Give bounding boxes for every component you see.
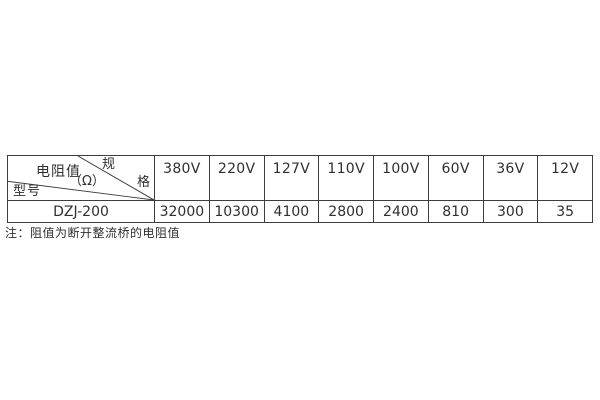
note-text: 注：阻值为断开整流桥的电阻值 [5, 224, 180, 241]
value-cell-60v: 810 [428, 201, 483, 222]
header-row: 规 格 电阻值 （Ω） 型号 380V 220V 127V 110V 100V … [8, 156, 592, 201]
column-header-60v: 60V [428, 156, 483, 200]
corner-label-spec-bottom: 格 [137, 176, 150, 189]
column-header-12v: 12V [537, 156, 592, 200]
table-corner-cell: 规 格 电阻值 （Ω） 型号 [8, 156, 154, 200]
column-header-100v: 100V [373, 156, 428, 200]
value-cell-100v: 2400 [373, 201, 428, 222]
corner-label-model: 型号 [13, 185, 41, 198]
value-cell-12v: 35 [537, 201, 592, 222]
value-cell-110v: 2800 [318, 201, 373, 222]
spec-table: 规 格 电阻值 （Ω） 型号 380V 220V 127V 110V 100V … [7, 155, 593, 223]
corner-label-spec-top: 规 [102, 158, 115, 171]
column-header-127v: 127V [264, 156, 319, 200]
column-header-36v: 36V [483, 156, 538, 200]
column-header-110v: 110V [318, 156, 373, 200]
value-cell-220v: 10300 [209, 201, 264, 222]
column-header-380v: 380V [154, 156, 209, 200]
model-cell: DZJ-200 [8, 201, 154, 222]
corner-label-unit: （Ω） [69, 175, 105, 188]
value-cell-380v: 32000 [154, 201, 209, 222]
value-cell-127v: 4100 [264, 201, 319, 222]
column-header-220v: 220V [209, 156, 264, 200]
table-row: DZJ-200 32000 10300 4100 2800 2400 810 3… [8, 201, 592, 222]
value-cell-36v: 300 [483, 201, 538, 222]
